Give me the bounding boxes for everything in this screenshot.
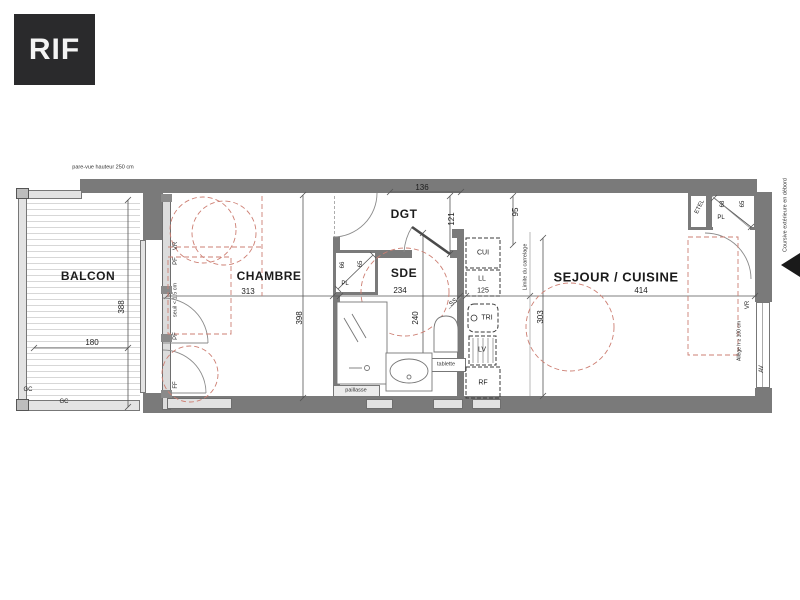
fixture-paillasse: paillasse <box>345 388 366 394</box>
opening-ff-left: FF <box>173 381 179 388</box>
gc-label-1: GC <box>24 387 33 393</box>
entry-door-opening <box>713 226 750 231</box>
fixture-rf: RF <box>478 380 487 387</box>
fixture-ll: LL <box>478 276 486 283</box>
opening-av-right: AV <box>759 365 765 373</box>
closet-label-pl: PL <box>341 281 348 287</box>
right-wall-upper <box>755 192 772 302</box>
balcony-right-rail <box>140 240 146 393</box>
dim-dgt-height: 121 <box>448 212 456 225</box>
fixture-tablette: tablette <box>437 362 455 368</box>
entry-closet-divider <box>706 194 712 229</box>
seuil-note: seuil < 1.5 cm <box>173 283 179 317</box>
dim-entry-closet-a: 68 <box>720 201 726 208</box>
window-mullion <box>161 390 172 398</box>
pare-vue-note: pare-vue hauteur 250 cm <box>72 165 133 171</box>
dim-chambre-height: 398 <box>296 311 304 324</box>
balcony-post-top <box>16 188 29 199</box>
room-label-dgt: DGT <box>391 208 418 220</box>
limite-carrelage-note: Limite du carrelage <box>523 244 529 291</box>
opening-pf-left-1: PF <box>173 257 179 265</box>
sde-south-window-2 <box>433 399 463 409</box>
dim-entry-closet-b: 65 <box>740 201 746 208</box>
dim-sde-height: 240 <box>412 311 420 324</box>
room-label-chambre: CHAMBRE <box>237 270 302 282</box>
dim-sejour-width: 414 <box>634 287 647 295</box>
floor-plan-page: RIF <box>0 0 800 600</box>
left-window-wall <box>162 194 171 410</box>
kitchen-south-window <box>472 399 501 409</box>
right-window-glazing-line <box>762 303 763 387</box>
balcony-corner-wall-bottom <box>143 393 163 413</box>
gc-label-2: GC <box>60 399 69 405</box>
window-mullion <box>161 334 172 342</box>
room-label-sejour: SEJOUR / CUISINE <box>553 271 678 284</box>
sde-left-wall <box>333 292 340 396</box>
balcony-bottom-rail <box>18 400 140 411</box>
kitchen-wall <box>457 238 464 396</box>
dim-sde-width: 234 <box>393 287 406 295</box>
opening-vr-right: VR <box>745 301 751 309</box>
balcony-corner-wall-top <box>143 193 163 240</box>
allege-note: Allège h ≥ 100 cm <box>738 321 743 361</box>
coursive-note: Coursive extérieure en débord <box>783 178 789 252</box>
opening-vr-left: VR <box>173 242 179 250</box>
rif-logo: RIF <box>14 14 95 85</box>
closet-label-pl-entry: PL <box>717 215 724 221</box>
room-label-balcon: BALCON <box>61 270 115 282</box>
dim-balcon-width: 180 <box>85 339 98 347</box>
right-window <box>756 302 770 388</box>
fixture-cui: CUI <box>477 250 489 257</box>
dim-kitchen-depth: 95 <box>512 208 520 217</box>
dim-closet-b: 65 <box>358 261 364 268</box>
rif-logo-text: RIF <box>29 33 80 67</box>
balcony-left-rail <box>18 196 27 408</box>
window-mullion <box>161 286 172 294</box>
dim-sejour-height: 303 <box>537 310 545 323</box>
chambre-closet <box>333 250 378 295</box>
dim-chambre-width: 313 <box>241 288 254 296</box>
room-label-sde: SDE <box>391 267 417 279</box>
kitchen-wall-stub <box>452 229 464 238</box>
fixture-lv: LV <box>478 347 486 354</box>
chambre-south-window <box>167 398 232 409</box>
balcony-post-bottom <box>16 399 29 411</box>
opening-pf-left-2: PF <box>173 332 179 340</box>
dim-dgt-width: 136 <box>415 184 428 192</box>
window-mullion <box>161 194 172 202</box>
fixture-tri: TRI <box>481 315 492 322</box>
dim-kitchen-width: 125 <box>477 288 489 295</box>
dim-balcon-height: 388 <box>118 300 126 313</box>
sde-south-window <box>366 399 393 409</box>
dim-closet-a: 66 <box>340 262 346 269</box>
